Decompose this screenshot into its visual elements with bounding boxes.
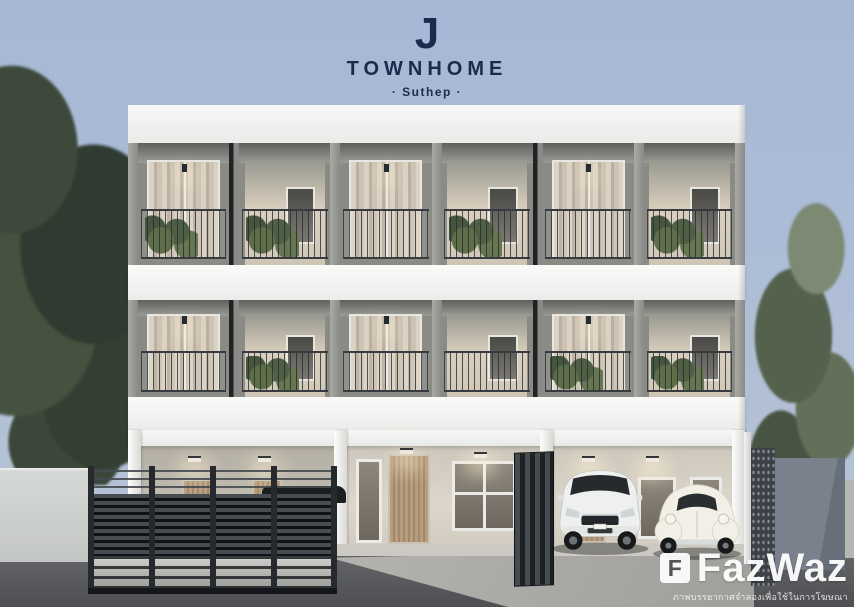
balcony-lamp (182, 316, 187, 324)
balcony-railing (647, 209, 733, 259)
gate-post (88, 466, 94, 588)
balcony-lamp (182, 164, 187, 172)
balcony-railing (545, 351, 631, 392)
facade-pier (533, 300, 543, 397)
balcony-recess-bay (644, 143, 735, 265)
balcony-railing (444, 209, 530, 259)
facade-pier (634, 300, 644, 397)
main-entrance-door (388, 454, 430, 544)
facade-pier (330, 300, 340, 397)
facade-pier (229, 143, 239, 265)
balcony-door-bay (138, 143, 229, 265)
facade-pier (533, 143, 543, 265)
balcony-door-bay (340, 300, 431, 397)
wall-lamp (258, 456, 271, 462)
balcony-railing (545, 209, 631, 259)
facade-pier (128, 300, 138, 397)
balcony-lamp (384, 164, 389, 172)
watermark-brand-text: FazWaz (697, 548, 848, 588)
floor-slab-band (128, 397, 745, 430)
balcony-door-bay (340, 143, 431, 265)
boundary-wall-left (0, 468, 90, 562)
facade-pier (634, 143, 644, 265)
balcony-railing (444, 351, 530, 392)
logo-subtitle: · Suthep · (0, 85, 854, 99)
balcony-recess-bay (442, 300, 533, 397)
logo-title: TOWNHOME (0, 58, 854, 81)
balcony-lamp (586, 164, 591, 172)
wall-lamp (188, 456, 201, 462)
balcony-railing (343, 351, 429, 392)
roof-parapet (128, 105, 745, 144)
balcony-recess-bay (239, 143, 330, 265)
facade-pier (432, 300, 442, 397)
balcony-recess-bay (239, 300, 330, 397)
facade-pier (330, 143, 340, 265)
floor-slab-band (128, 265, 745, 300)
watermark-disclaimer: ภาพบรรยากาศจำลองเพื่อใช้ในการโฆษณา (673, 590, 848, 604)
driveway-gate (88, 470, 337, 588)
gate-post (149, 466, 155, 588)
balcony-railing (141, 351, 227, 392)
balcony-recess-bay (442, 143, 533, 265)
ground-window (452, 461, 516, 531)
gate-post (271, 466, 277, 588)
gate-post (210, 466, 216, 588)
balcony-door-bay (543, 300, 634, 397)
second-floor-balconies (128, 300, 745, 397)
balcony-railing (647, 351, 733, 392)
fazwaz-logo-icon: F (660, 553, 690, 583)
facade-pier (432, 143, 442, 265)
balcony-lamp (586, 316, 591, 324)
balcony-railing (242, 351, 328, 392)
third-floor-balconies (128, 143, 745, 265)
gate-post (331, 466, 337, 588)
townhome-render-scene: J TOWNHOME · Suthep · (0, 0, 854, 607)
balcony-railing (242, 209, 328, 259)
balcony-door-bay (543, 143, 634, 265)
wall-lamp (474, 452, 487, 458)
white-suv-car (548, 458, 652, 556)
tall-window (356, 459, 382, 543)
logo-letter-mark: J (0, 14, 854, 54)
carport-ceiling (128, 430, 745, 446)
facade-pier (735, 300, 745, 397)
balcony-recess-bay (644, 300, 735, 397)
fazwaz-watermark: F FazWaz ภาพบรรยากาศจำลองเพื่อใช้ในการโฆ… (660, 548, 848, 604)
balcony-railing (141, 209, 227, 259)
facade-pier (735, 143, 745, 265)
balcony-lamp (384, 316, 389, 324)
fence-post-right (744, 432, 751, 564)
balcony-railing (343, 209, 429, 259)
project-logo: J TOWNHOME · Suthep · (0, 14, 854, 99)
wall-lamp (400, 448, 413, 454)
watermark-row: F FazWaz (660, 548, 848, 588)
facade-pier (229, 300, 239, 397)
facade-pier (128, 143, 138, 265)
balcony-door-bay (138, 300, 229, 397)
